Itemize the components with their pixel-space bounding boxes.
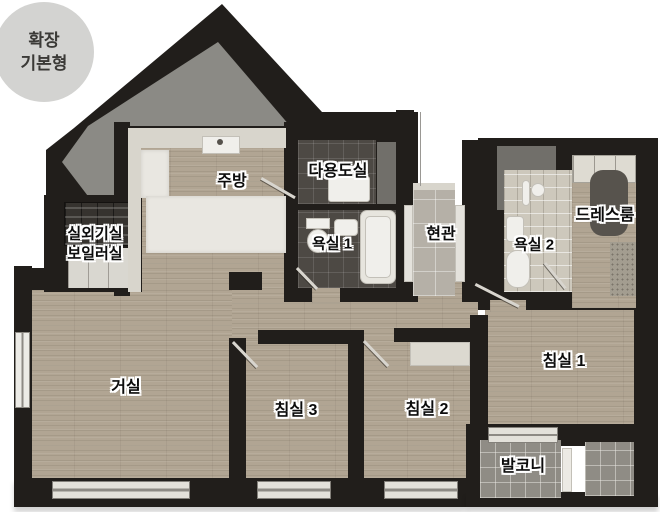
entrance-antenna-line bbox=[420, 112, 421, 186]
label-entrance: 현관 bbox=[426, 227, 455, 243]
label-living: 거실 bbox=[111, 380, 140, 396]
floor-plan-page: { "badge": { "line1": "확장", "line2": "기본… bbox=[0, 0, 660, 512]
bedroom3-bedroom2-wall bbox=[348, 330, 364, 507]
label-utility: 다용도실 bbox=[309, 164, 368, 180]
entrance-cabinet-right bbox=[455, 205, 465, 282]
bath1-bathtub-inner bbox=[365, 216, 391, 278]
aircon-deck-floor bbox=[585, 442, 634, 496]
bedroom1-balcony-window bbox=[488, 427, 558, 443]
bath2-shower-stem bbox=[522, 180, 530, 206]
label-outdoor-unit: 실외기실 bbox=[67, 227, 122, 242]
right-exterior-wall bbox=[634, 138, 658, 505]
label-balcony: 발코니 bbox=[501, 459, 545, 475]
bedroom2-window bbox=[384, 481, 458, 499]
dressroom-mat bbox=[610, 242, 636, 296]
label-bedroom3: 침실 3 bbox=[275, 403, 318, 419]
living-bottom-window bbox=[52, 481, 190, 499]
bath1-sink bbox=[334, 219, 358, 236]
badge-line-1: 확장 bbox=[28, 29, 59, 52]
label-bedroom2: 침실 2 bbox=[406, 402, 449, 418]
badge-line-2: 기본형 bbox=[21, 52, 68, 75]
plan-type-badge: 확장 기본형 bbox=[0, 2, 94, 102]
hall-wall-stub bbox=[229, 272, 262, 290]
label-boiler: 보일러실 bbox=[67, 247, 122, 262]
entrance-cabinet-left bbox=[404, 205, 413, 282]
kitchen-counter-peninsula bbox=[146, 196, 286, 253]
label-dressroom: 드레스룸 bbox=[576, 208, 635, 224]
bedroom2-top-wall bbox=[394, 328, 474, 342]
kitchen-faucet bbox=[217, 139, 223, 145]
bedroom2-wardrobe bbox=[410, 342, 470, 366]
living-bedroom3-wall bbox=[229, 338, 246, 507]
bath2-shower-head bbox=[531, 183, 545, 197]
label-bath1: 욕실 1 bbox=[312, 237, 352, 252]
kitchen-counter-left bbox=[141, 150, 169, 198]
bath1-door-threshold bbox=[312, 288, 340, 303]
living-left-window bbox=[15, 332, 30, 408]
balcony-divider-door bbox=[562, 448, 572, 492]
dressroom-rug bbox=[590, 170, 628, 236]
label-bedroom1: 침실 1 bbox=[543, 354, 586, 370]
bath2-toilet bbox=[506, 250, 530, 288]
label-kitchen: 주방 bbox=[217, 174, 246, 190]
utility-duct bbox=[377, 142, 396, 204]
bath1-toilet-tank bbox=[306, 218, 330, 229]
kitchen-side-wall bbox=[128, 128, 141, 292]
bedroom3-window bbox=[257, 481, 331, 499]
label-bath2: 욕실 2 bbox=[514, 238, 554, 253]
bedroom3-top-wall bbox=[258, 330, 352, 344]
